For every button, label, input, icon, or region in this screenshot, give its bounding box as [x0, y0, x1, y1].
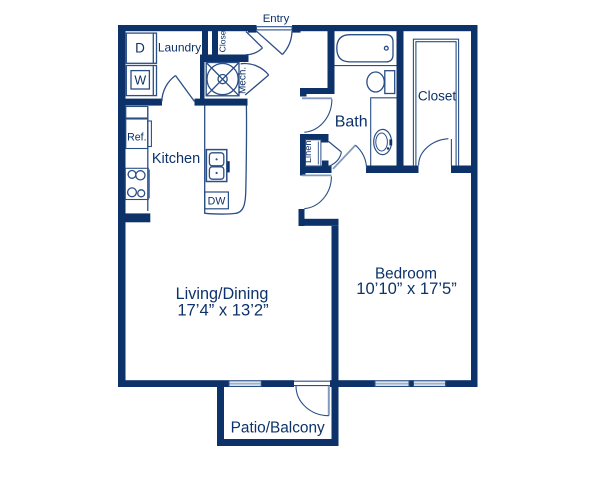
svg-text:Closet: Closet: [418, 89, 457, 104]
svg-text:D: D: [135, 41, 145, 56]
svg-text:DW: DW: [208, 196, 226, 208]
svg-text:Ref.: Ref.: [127, 132, 146, 144]
svg-text:Laundry: Laundry: [158, 41, 201, 55]
svg-text:Bath: Bath: [335, 114, 368, 131]
svg-text:Patio/Balcony: Patio/Balcony: [231, 419, 325, 436]
svg-text:10’10” x 17’5”: 10’10” x 17’5”: [356, 279, 457, 298]
svg-text:Linen: Linen: [303, 141, 313, 163]
svg-text:17’4” x 13’2”: 17’4” x 13’2”: [177, 301, 268, 320]
svg-text:Mech.: Mech.: [238, 67, 249, 94]
svg-text:Kitchen: Kitchen: [152, 151, 200, 167]
svg-text:Entry: Entry: [263, 13, 290, 25]
svg-text:Closet: Closet: [218, 27, 228, 52]
svg-text:W: W: [134, 74, 146, 88]
